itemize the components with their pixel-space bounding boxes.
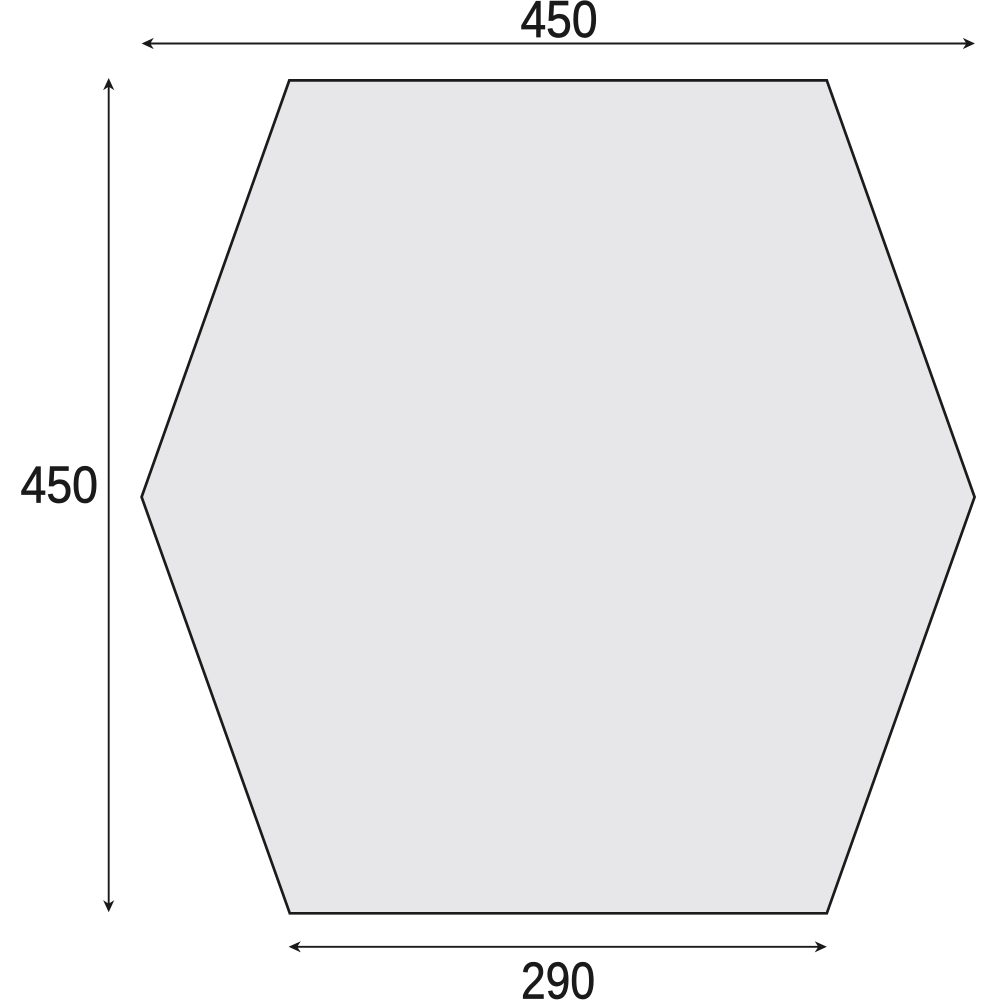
svg-text:450: 450	[21, 456, 99, 514]
svg-text:450: 450	[521, 0, 598, 48]
svg-text:290: 290	[521, 951, 595, 1000]
